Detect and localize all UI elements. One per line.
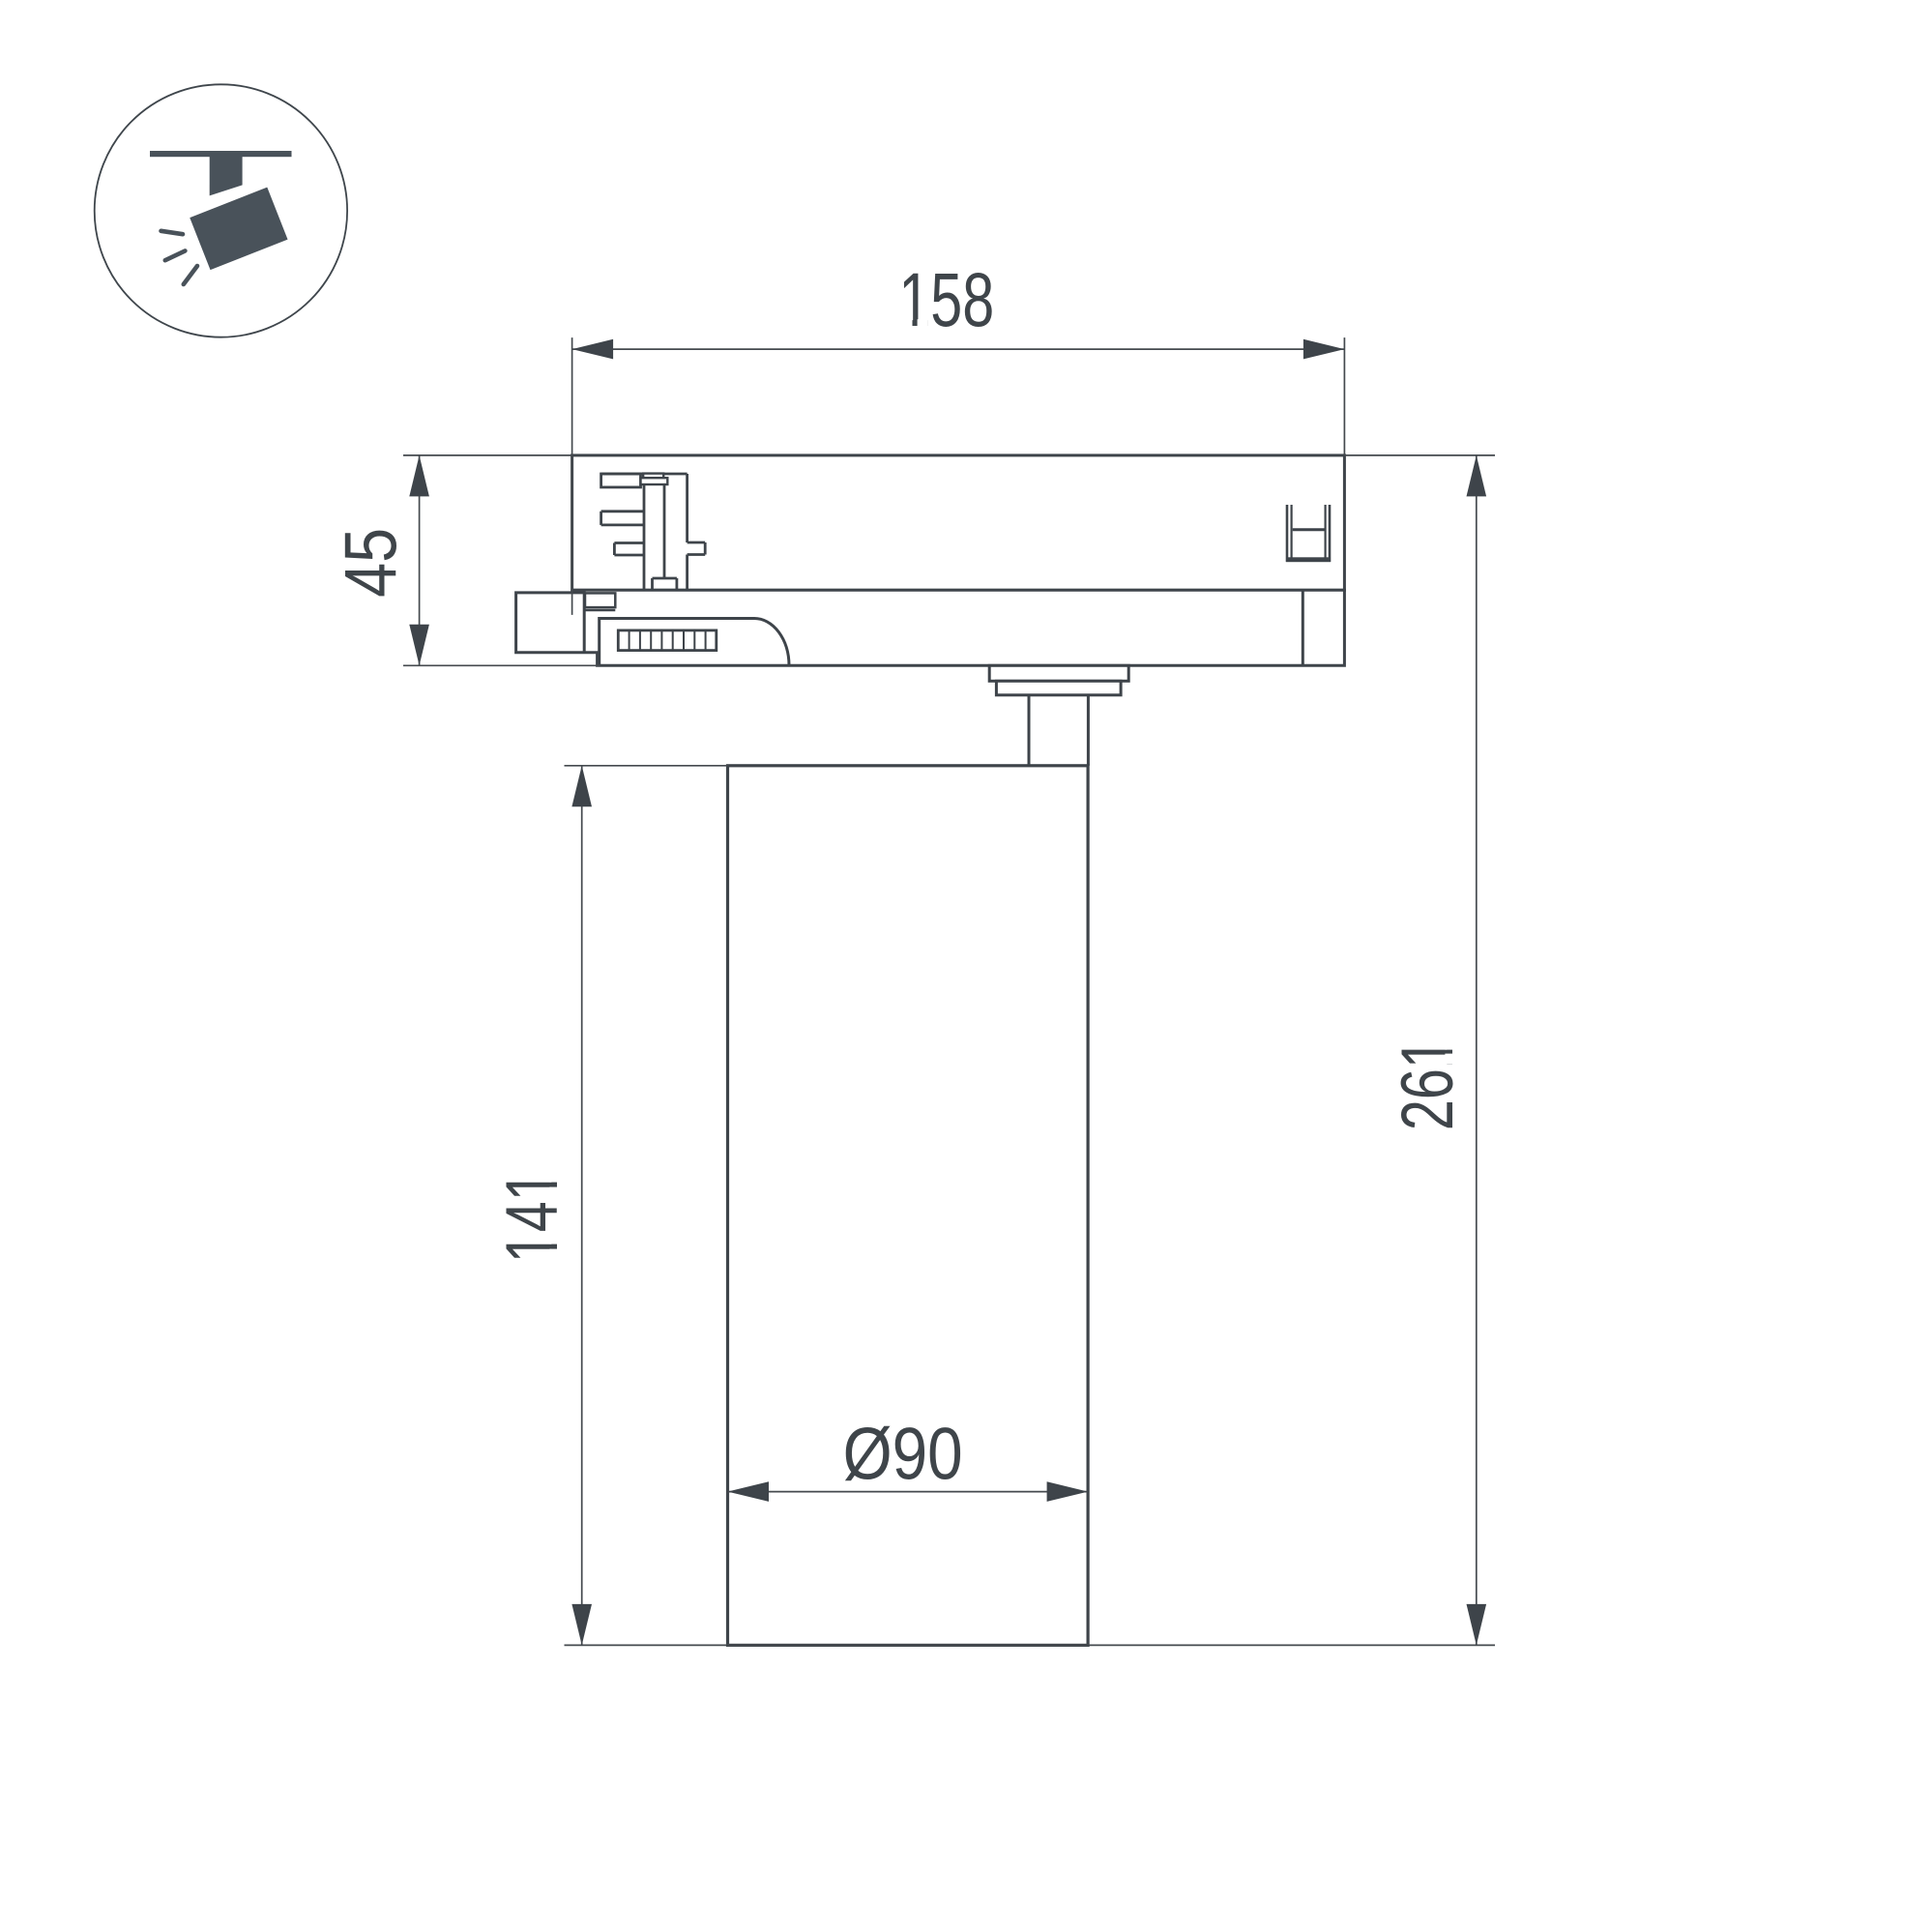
svg-text:Ø90: Ø90 [843, 1413, 963, 1495]
svg-text:141: 141 [491, 1170, 573, 1263]
svg-text:261: 261 [1387, 1038, 1469, 1130]
svg-text:158: 158 [898, 256, 994, 342]
svg-text:45: 45 [331, 528, 413, 598]
